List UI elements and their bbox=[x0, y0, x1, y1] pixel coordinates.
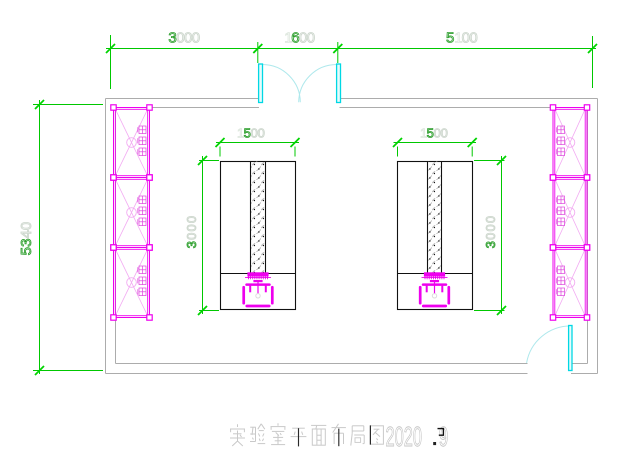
svg-text:5: 5 bbox=[446, 30, 454, 47]
svg-text:3: 3 bbox=[18, 239, 35, 247]
svg-text:4: 4 bbox=[18, 230, 35, 238]
svg-text:3: 3 bbox=[483, 241, 498, 248]
svg-text:0: 0 bbox=[483, 224, 498, 231]
svg-text:3: 3 bbox=[184, 241, 199, 248]
svg-text:0: 0 bbox=[184, 224, 199, 231]
svg-text:0: 0 bbox=[192, 30, 200, 47]
svg-text:0: 0 bbox=[441, 126, 448, 141]
svg-text:5: 5 bbox=[18, 247, 35, 255]
svg-text:0: 0 bbox=[184, 216, 199, 223]
svg-text:0: 0 bbox=[469, 30, 477, 47]
svg-text:2020: 2020 bbox=[386, 421, 423, 452]
svg-text:0: 0 bbox=[307, 30, 315, 47]
svg-text:0: 0 bbox=[258, 126, 265, 141]
svg-text:0: 0 bbox=[483, 216, 498, 223]
svg-text:0: 0 bbox=[483, 233, 498, 240]
svg-text:9: 9 bbox=[439, 421, 449, 452]
svg-text:0: 0 bbox=[184, 233, 199, 240]
svg-text:0: 0 bbox=[18, 222, 35, 230]
